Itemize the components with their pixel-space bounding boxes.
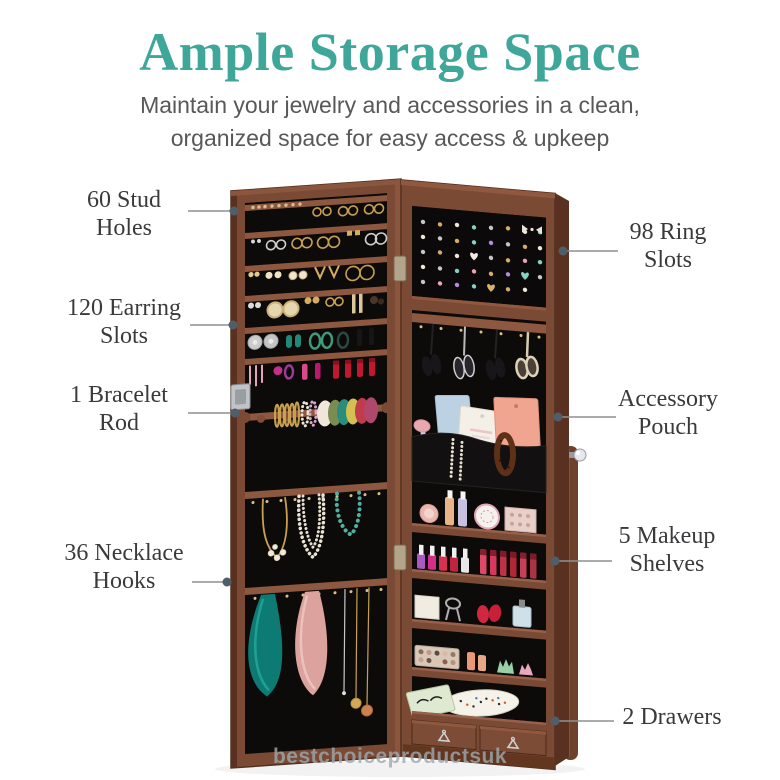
callout-label-stud-holes: 60 Stud Holes: [64, 186, 184, 242]
callout-line-stud-holes: [188, 207, 239, 216]
callout-label-earring-slots: 120 Earring Slots: [44, 294, 204, 350]
infographic-page: Ample Storage Space Maintain your jewelr…: [0, 0, 780, 780]
cabinet-left-door: [231, 179, 401, 768]
scrunchies: [317, 397, 378, 427]
callout-label-accessory-pouch: Accessory Pouch: [598, 385, 738, 441]
cabinet-right: [401, 180, 555, 769]
door-lock: [231, 384, 250, 410]
callout-label-ring-slots: 98 Ring Slots: [608, 218, 728, 274]
ring-slot-panel: [412, 206, 546, 308]
callout-label-necklace-hooks: 36 Necklace Hooks: [39, 539, 209, 595]
watermark: bestchoiceproductsuk: [273, 745, 507, 769]
cabinet-side-panel: [555, 193, 569, 766]
callout-label-bracelet-rod: 1 Bracelet Rod: [49, 381, 189, 437]
callout-label-makeup-shelves: 5 Makeup Shelves: [602, 522, 732, 578]
callout-label-drawers: 2 Drawers: [592, 703, 752, 731]
